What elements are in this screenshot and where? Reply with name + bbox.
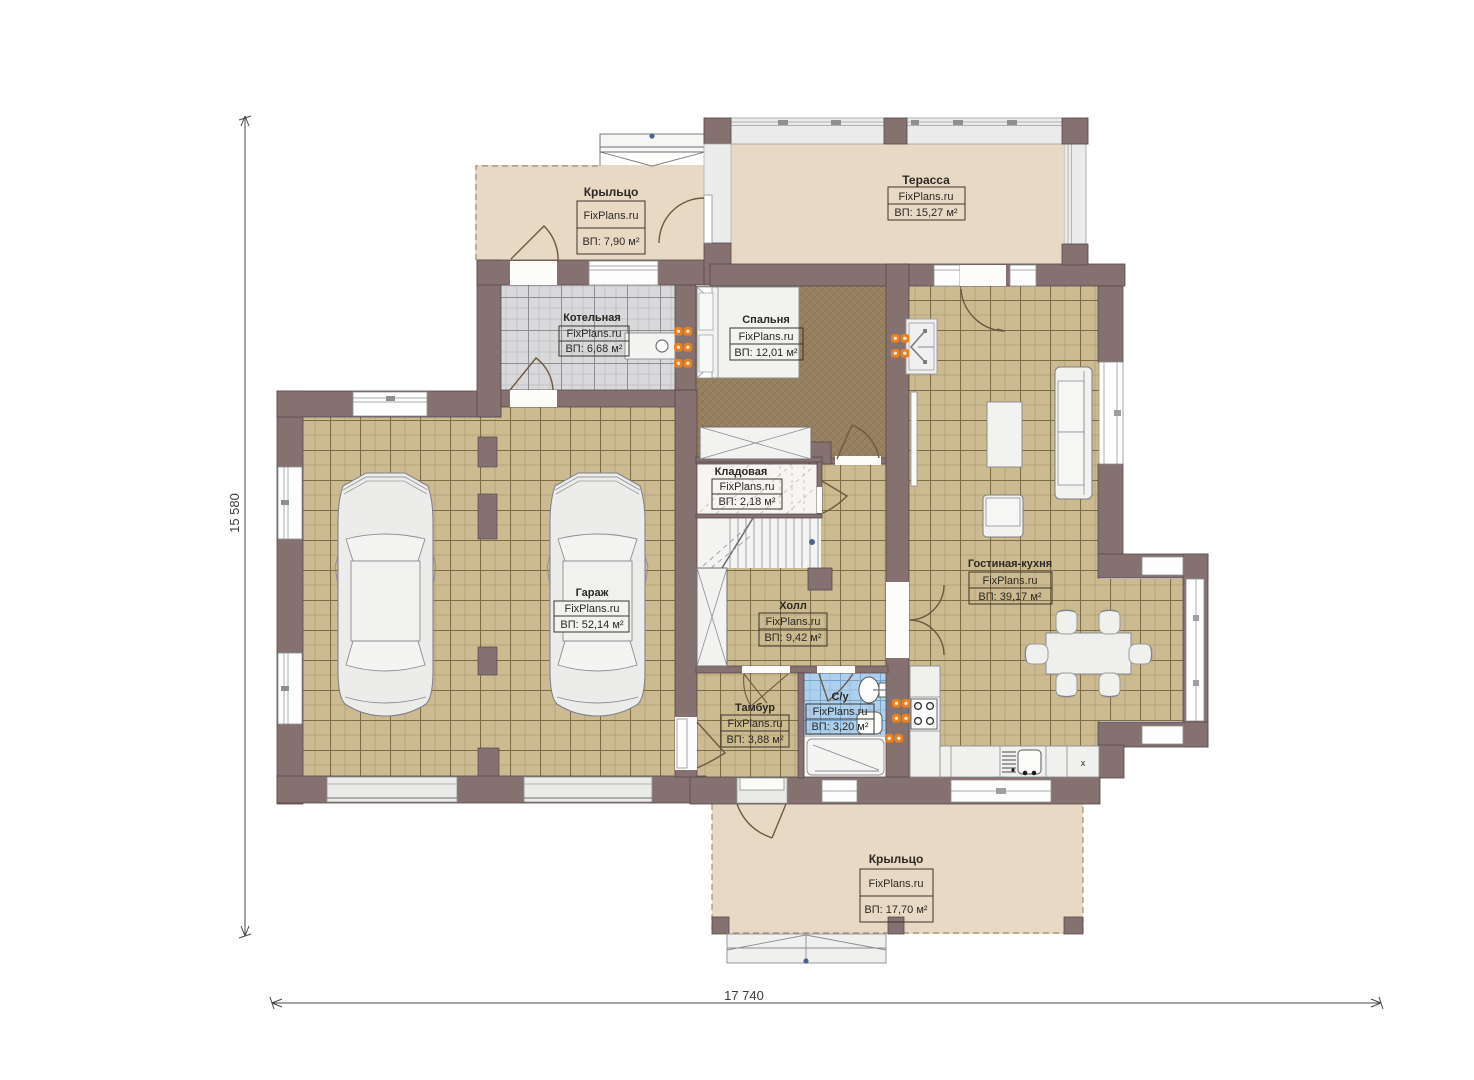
svg-text:ВП: 12,01 м²: ВП: 12,01 м² bbox=[734, 347, 798, 359]
svg-text:FixPlans.ru: FixPlans.ru bbox=[719, 481, 774, 493]
svg-text:Гараж: Гараж bbox=[576, 587, 609, 599]
svg-text:Холл: Холл bbox=[779, 600, 807, 612]
svg-text:15 580: 15 580 bbox=[227, 493, 242, 533]
svg-text:Терасса: Терасса bbox=[902, 173, 950, 187]
svg-text:Гостиная-кухня: Гостиная-кухня bbox=[968, 558, 1052, 570]
svg-text:ВП: 9,42 м²: ВП: 9,42 м² bbox=[764, 632, 821, 644]
svg-text:Крыльцо: Крыльцо bbox=[869, 852, 924, 866]
svg-text:Котельная: Котельная bbox=[563, 312, 621, 324]
svg-text:С/у: С/у bbox=[831, 691, 849, 703]
svg-text:ВП: 6,68 м²: ВП: 6,68 м² bbox=[565, 343, 622, 355]
svg-text:ВП: 2,18 м²: ВП: 2,18 м² bbox=[718, 496, 775, 508]
svg-text:FixPlans.ru: FixPlans.ru bbox=[765, 616, 820, 628]
svg-text:FixPlans.ru: FixPlans.ru bbox=[583, 210, 638, 222]
svg-text:FixPlans.ru: FixPlans.ru bbox=[898, 191, 953, 203]
svg-text:FixPlans.ru: FixPlans.ru bbox=[564, 603, 619, 615]
svg-text:FixPlans.ru: FixPlans.ru bbox=[982, 575, 1037, 587]
svg-text:ВП: 15,27 м²: ВП: 15,27 м² bbox=[894, 207, 958, 219]
svg-text:ВП: 17,70 м²: ВП: 17,70 м² bbox=[864, 904, 928, 916]
svg-text:ВП: 3,88 м²: ВП: 3,88 м² bbox=[726, 734, 783, 746]
svg-text:x: x bbox=[1081, 758, 1086, 768]
svg-text:ВП: 39,17 м²: ВП: 39,17 м² bbox=[978, 591, 1042, 603]
svg-text:FixPlans.ru: FixPlans.ru bbox=[566, 328, 621, 340]
svg-text:FixPlans.ru: FixPlans.ru bbox=[727, 718, 782, 730]
svg-text:FixPlans.ru: FixPlans.ru bbox=[868, 878, 923, 890]
svg-text:ВП: 3,20 м²: ВП: 3,20 м² bbox=[811, 721, 868, 733]
svg-text:Крыльцо: Крыльцо bbox=[584, 185, 639, 199]
svg-text:ВП: 52,14 м²: ВП: 52,14 м² bbox=[560, 619, 624, 631]
svg-text:FixPlans.ru: FixPlans.ru bbox=[738, 331, 793, 343]
svg-text:Спальня: Спальня bbox=[742, 314, 790, 326]
svg-text:ВП: 7,90 м²: ВП: 7,90 м² bbox=[582, 236, 639, 248]
svg-text:Кладовая: Кладовая bbox=[715, 466, 768, 478]
svg-text:17 740: 17 740 bbox=[724, 988, 764, 1003]
svg-text:FixPlans.ru: FixPlans.ru bbox=[812, 706, 867, 718]
svg-text:Тамбур: Тамбур bbox=[735, 702, 775, 714]
